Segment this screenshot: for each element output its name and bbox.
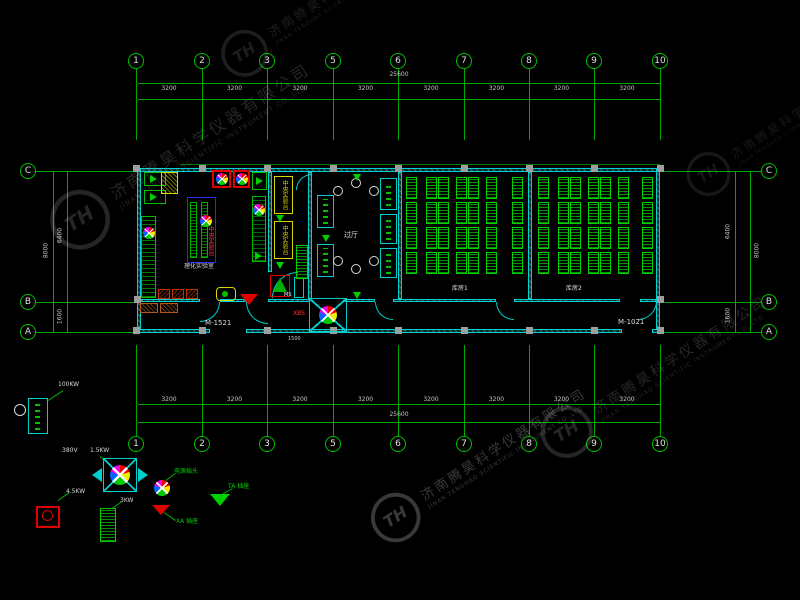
door-arc	[296, 174, 312, 190]
door-tag-left: M-1521	[205, 320, 231, 327]
cabinet-text-marks	[323, 199, 328, 224]
wall	[246, 329, 622, 333]
bench-label: 中央实验台	[281, 180, 288, 210]
fume-hood	[161, 172, 178, 194]
grid-bubble-bottom: 2	[194, 436, 210, 452]
storage-rack	[512, 252, 523, 274]
legend-label: 电源插头	[174, 468, 198, 475]
storage-rack	[426, 177, 437, 199]
storage-rack	[588, 227, 599, 249]
grid-bubble-bottom: 9	[586, 436, 602, 452]
storage-rack	[486, 227, 497, 249]
hatch-triangle	[273, 278, 287, 292]
grid-line-right	[660, 332, 761, 333]
watermark-logo-icon: TH	[39, 178, 122, 261]
tag-ms: MS	[284, 292, 292, 299]
dim-door-width: 1500	[288, 336, 301, 343]
grid-line-top	[136, 69, 137, 140]
wall	[528, 172, 532, 299]
watermark-text-zh: 济南腾昊科学仪器有限公司	[264, 0, 428, 41]
column-marker	[461, 327, 468, 334]
equipment-small	[172, 289, 184, 299]
dim-segment-top: 3200	[346, 85, 386, 92]
storage-rack	[600, 252, 611, 274]
speaker-icon	[353, 292, 361, 299]
dim-segment-top: 3200	[411, 85, 451, 92]
storage-rack	[456, 177, 467, 199]
storage-rack	[538, 252, 549, 274]
grid-line-left	[36, 332, 137, 333]
dim-segment-bottom: 3200	[607, 396, 647, 403]
grid-bubble-top: 2	[194, 53, 210, 69]
grid-bubble-bottom: 8	[521, 436, 537, 452]
legend-label: 380V	[62, 447, 78, 454]
fan-icon	[143, 227, 155, 239]
legend-label: 1.5KW	[90, 447, 109, 454]
grid-bubble-top: 7	[456, 53, 472, 69]
lamp-icon	[333, 256, 343, 266]
storage-rack	[438, 252, 449, 274]
column-marker	[591, 165, 598, 172]
grid-line-right	[660, 302, 761, 303]
legend-plug-icon	[154, 480, 170, 496]
column-marker	[199, 327, 206, 334]
grid-line-bottom	[660, 345, 661, 436]
bench-label: 中央实验台	[281, 225, 288, 255]
dim-segment-top: 3200	[607, 85, 647, 92]
grid-bubble-right: C	[761, 163, 777, 179]
grid-line-top	[398, 69, 399, 140]
column-marker	[526, 327, 533, 334]
dim-segment-bottom: 3200	[477, 396, 517, 403]
dim-segment-bottom: 3200	[149, 396, 189, 403]
dim-side: 6400	[57, 221, 64, 251]
storage-rack	[438, 227, 449, 249]
bench-label: 中央实验台	[207, 226, 214, 256]
storage-rack	[588, 177, 599, 199]
legend-socket-green-icon	[210, 494, 230, 506]
grid-bubble-bottom: 5	[325, 436, 341, 452]
storage-rack	[456, 227, 467, 249]
storage-rack	[558, 177, 569, 199]
grid-line-top	[529, 69, 530, 140]
grid-bubble-top: 6	[390, 53, 406, 69]
equipment-small	[158, 289, 170, 299]
storage-rack	[468, 177, 479, 199]
column-marker	[657, 327, 664, 334]
bench-rack	[190, 202, 197, 258]
door-tag-right: M-1021	[618, 319, 644, 326]
grid-line-top	[267, 69, 268, 140]
storage-rack	[600, 177, 611, 199]
speaker-icon	[276, 215, 284, 222]
storage-rack	[468, 252, 479, 274]
grid-bubble-left: B	[20, 294, 36, 310]
dim-segment-bottom: 3200	[542, 396, 582, 403]
lamp-icon	[333, 186, 343, 196]
wall	[393, 299, 496, 302]
storage-rack	[642, 227, 653, 249]
cabinet-text-marks	[386, 182, 391, 206]
fan-tag: XBS	[293, 310, 305, 317]
room-label-store1: 库房1	[452, 285, 468, 292]
storage-rack	[438, 177, 449, 199]
wall	[656, 168, 660, 333]
dim-segment-bottom: 3200	[215, 396, 255, 403]
storage-rack	[406, 227, 417, 249]
legend-label: 4.5KW	[66, 488, 85, 495]
dim-side: 1600	[725, 301, 732, 331]
watermark-text-zh: 济南腾昊科学仪器有限公司	[727, 54, 800, 163]
wall	[141, 299, 200, 302]
storage-rack	[642, 252, 653, 274]
grid-line-top	[202, 69, 203, 140]
storage-rack	[512, 227, 523, 249]
storage-rack	[600, 202, 611, 224]
dim-side: 8000	[754, 236, 761, 266]
storage-rack	[570, 227, 581, 249]
storage-rack	[456, 252, 467, 274]
grid-bubble-top: 8	[521, 53, 537, 69]
room-label-lab: 理化实验室	[184, 263, 214, 270]
storage-rack	[406, 177, 417, 199]
arrow-icon	[255, 252, 262, 260]
storage-rack	[570, 202, 581, 224]
column-marker	[395, 165, 402, 172]
fan-cone-icon	[138, 468, 148, 482]
storage-rack	[588, 202, 599, 224]
grid-bubble-bottom: 10	[652, 436, 668, 452]
grid-bubble-left: A	[20, 324, 36, 340]
storage-rack	[468, 202, 479, 224]
arrow-icon	[150, 175, 157, 183]
grid-bubble-top: 3	[259, 53, 275, 69]
storage-rack	[558, 252, 569, 274]
legend-circle	[14, 404, 26, 416]
watermark-text-en: JINAN TENGHAO SCIENTIFIC INSTRUMENT CO.,…	[274, 0, 431, 46]
grid-bubble-bottom: 6	[390, 436, 406, 452]
legend-unit-circle	[42, 510, 53, 521]
storage-rack	[426, 252, 437, 274]
storage-rack	[538, 227, 549, 249]
grid-bubble-top: 9	[586, 53, 602, 69]
storage-rack	[486, 202, 497, 224]
column-marker	[133, 165, 140, 172]
storage-rack	[570, 177, 581, 199]
grid-bubble-top: 1	[128, 53, 144, 69]
watermark-logo-icon: TH	[531, 396, 603, 468]
machine-dot	[222, 291, 228, 297]
fan-icon	[216, 173, 228, 185]
grid-bubble-right: B	[761, 294, 777, 310]
legend-label: TA 插座	[228, 483, 249, 490]
cabinet-text-marks	[386, 218, 391, 240]
radiator	[140, 303, 158, 313]
column-marker	[591, 327, 598, 334]
wall	[345, 299, 375, 302]
watermark: TH济南腾昊科学仪器有限公司JINAN TENGHAO SCIENTIFIC I…	[678, 45, 800, 205]
storage-rack	[618, 177, 629, 199]
grid-line-top	[333, 69, 334, 140]
grid-bubble-top: 10	[652, 53, 668, 69]
dim-segment-bottom: 3200	[411, 396, 451, 403]
storage-rack	[406, 202, 417, 224]
storage-rack	[486, 177, 497, 199]
dim-segment-bottom: 3200	[346, 396, 386, 403]
grid-line-top	[464, 69, 465, 140]
column-marker	[264, 327, 271, 334]
column-marker	[134, 296, 141, 303]
lamp-icon	[369, 256, 379, 266]
storage-rack	[468, 227, 479, 249]
storage-rack	[558, 202, 569, 224]
watermark-text-en: JINAN TENGHAO SCIENTIFIC INSTRUMENT CO.,…	[427, 399, 593, 510]
storage-rack	[406, 252, 417, 274]
storage-rack	[512, 177, 523, 199]
dim-side: 8000	[43, 236, 50, 266]
storage-rack	[438, 202, 449, 224]
wall	[308, 172, 312, 299]
roof-line	[180, 164, 660, 165]
cabinet-small	[294, 277, 304, 298]
storage-rack	[642, 177, 653, 199]
wall	[268, 299, 310, 302]
grid-bubble-bottom: 7	[456, 436, 472, 452]
floor-drain-icon	[240, 294, 258, 305]
door-arc	[246, 302, 268, 324]
wall	[268, 172, 272, 272]
leader-line	[48, 390, 64, 401]
speaker-icon	[322, 235, 330, 242]
dimension-line-vertical	[735, 171, 736, 332]
column-marker	[395, 327, 402, 334]
dimension-line-vertical	[67, 171, 68, 332]
dimension-line	[138, 404, 660, 405]
storage-rack	[570, 252, 581, 274]
dimension-line-vertical	[53, 171, 54, 332]
wall	[514, 299, 620, 302]
dimension-line-vertical	[750, 171, 751, 332]
dim-segment-top: 3200	[215, 85, 255, 92]
lamp-icon	[369, 186, 379, 196]
radiator	[160, 303, 178, 313]
dimension-line	[138, 422, 660, 423]
cad-floorplan-canvas: 1122335566778899101032003200320032003200…	[0, 0, 800, 600]
cabinet-text-marks	[386, 252, 391, 274]
legend-label: XA 插座	[176, 518, 198, 525]
dim-segment-top: 3200	[149, 85, 189, 92]
column-marker	[264, 165, 271, 172]
column-marker	[657, 296, 664, 303]
speaker-icon	[276, 262, 284, 269]
storage-rack	[642, 202, 653, 224]
arrow-icon	[256, 177, 263, 185]
door-arc	[375, 302, 393, 320]
fan-cone-icon	[92, 468, 102, 482]
storage-rack	[600, 227, 611, 249]
column-marker	[526, 165, 533, 172]
dim-side: 1600	[57, 302, 64, 332]
grid-line-left	[36, 302, 137, 303]
grid-bubble-bottom: 3	[259, 436, 275, 452]
lamp-icon	[351, 264, 361, 274]
cabinet-text-marks	[323, 248, 328, 273]
storage-rack	[486, 252, 497, 274]
grid-bubble-left: C	[20, 163, 36, 179]
door-arc	[496, 302, 514, 320]
storage-rack	[588, 252, 599, 274]
grid-line-left	[36, 171, 137, 172]
grid-bubble-right: A	[761, 324, 777, 340]
column-marker	[199, 165, 206, 172]
dimension-line	[138, 83, 660, 84]
room-label-store2: 库房2	[566, 285, 582, 292]
equipment-small	[186, 289, 198, 299]
storage-rack	[538, 177, 549, 199]
storage-rack	[558, 227, 569, 249]
grid-line-top	[594, 69, 595, 140]
storage-rack	[426, 202, 437, 224]
axial-fan-icon	[319, 306, 337, 324]
dim-total-top: 25600	[369, 71, 429, 78]
grid-line-top	[660, 69, 661, 140]
room-label-hall: 过厅	[344, 232, 358, 239]
storage-rack	[618, 227, 629, 249]
watermark-text-en: JINAN TENGHAO SCIENTIFIC INSTRUMENT CO.,…	[736, 68, 800, 167]
storage-rack	[538, 202, 549, 224]
grid-bubble-top: 5	[325, 53, 341, 69]
legend-fan-icon	[110, 465, 130, 485]
storage-rack	[426, 227, 437, 249]
fan-icon	[236, 173, 248, 185]
dim-segment-bottom: 3200	[280, 396, 320, 403]
watermark-logo-icon: TH	[678, 143, 739, 204]
storage-rack	[618, 202, 629, 224]
grid-line-right	[660, 171, 761, 172]
dim-segment-top: 3200	[477, 85, 517, 92]
dim-segment-top: 3200	[542, 85, 582, 92]
storage-rack	[512, 202, 523, 224]
storage-rack	[618, 252, 629, 274]
rack-small	[296, 245, 308, 279]
storage-rack	[456, 202, 467, 224]
dimension-line	[138, 99, 660, 100]
column-marker	[461, 165, 468, 172]
grid-bubble-bottom: 1	[128, 436, 144, 452]
legend-label: 3KW	[120, 497, 133, 504]
dim-segment-top: 3200	[280, 85, 320, 92]
column-marker	[133, 327, 140, 334]
cabinet-text-marks	[35, 402, 40, 430]
dim-side: 6400	[725, 217, 732, 247]
speaker-icon	[353, 174, 361, 181]
column-marker	[330, 165, 337, 172]
column-marker	[657, 165, 664, 172]
watermark-logo-icon: TH	[362, 483, 430, 551]
dim-total-bottom: 25600	[369, 411, 429, 418]
grid-line-bottom	[136, 345, 137, 436]
wall	[398, 172, 402, 299]
legend-rack	[100, 508, 116, 542]
fan-icon	[253, 204, 265, 216]
arrow-icon	[150, 193, 157, 201]
legend-label: 100KW	[58, 381, 79, 388]
